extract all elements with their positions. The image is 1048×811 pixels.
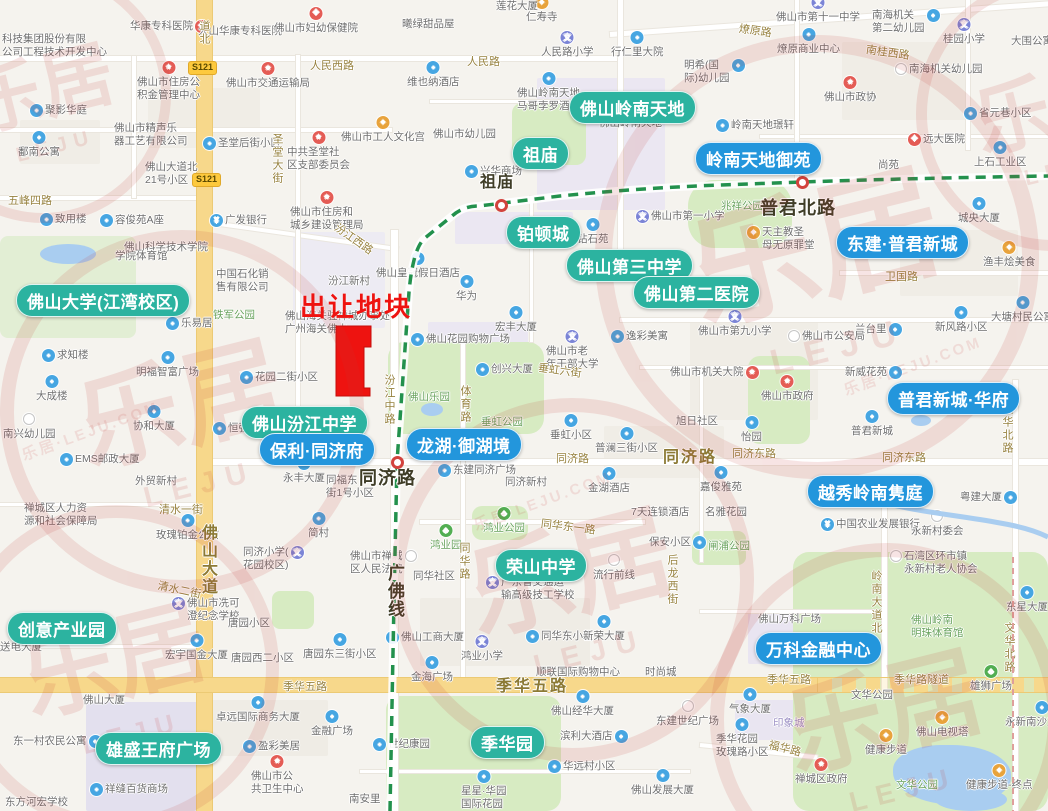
map-badge-project[interactable]: 越秀岭南隽庭 <box>807 475 934 508</box>
road <box>840 271 1048 275</box>
poi-label-text: 佛山市公共卫生中心 <box>251 770 304 795</box>
map-badge-project[interactable]: 东建·普君新城 <box>836 226 969 259</box>
building-icon: ▪ <box>438 464 451 477</box>
poi-label-text: 华康专科医院 <box>130 20 193 33</box>
road-label: 同华路 <box>456 542 472 581</box>
building-icon: ▪ <box>526 630 539 643</box>
poi-label: 同济新村 <box>505 476 547 489</box>
poi-label: ▪鄱南公寓 <box>18 146 60 159</box>
poi-label-text: 名雅花园 <box>705 506 747 519</box>
place-icon <box>682 700 694 712</box>
poi-label-text: 唐园东三街小区 <box>303 648 377 661</box>
map-badge-project[interactable]: 保利·同济府 <box>259 433 375 466</box>
poi-label: 佛山大道北21号小区 <box>145 161 198 186</box>
poi-label: 佛山市精声乐器工艺有限公司 <box>114 122 188 147</box>
poi-label-text: 容俊苑A座 <box>115 214 164 227</box>
poi-label: 唐园小区 <box>228 617 270 630</box>
building-icon: ▪ <box>148 405 161 418</box>
poi-label: 佛山岭南明珠体育馆 <box>911 614 964 639</box>
bank-icon: ¥ <box>821 518 834 531</box>
poi-label-text: 雄狮广场 <box>970 680 1012 693</box>
government-icon: ★ <box>320 191 333 204</box>
attraction-icon: ✦ <box>936 711 949 724</box>
poi-label: ▪星星·华园国际花园 <box>461 785 507 810</box>
poi-label-text: 健康步道 <box>865 744 907 757</box>
poi-label-text: 粤建大厦 <box>960 491 1002 504</box>
poi-label-text: 佛山市幼儿园 <box>433 128 496 141</box>
poi-label-text: 季华花园玫瑰路小区 <box>716 733 769 758</box>
building-icon: ▪ <box>693 536 706 549</box>
map-badge-project[interactable]: 岭南天地御苑 <box>695 142 822 175</box>
poi-label: 佛山万科广场 <box>758 613 821 626</box>
government-icon: ★ <box>262 62 275 75</box>
poi-label: ¥中国农业发展银行 <box>821 518 920 531</box>
road-label: 文华北路 <box>1001 622 1017 674</box>
poi-label: ▪金融广场 <box>311 725 353 738</box>
map-badge-project[interactable]: 万科金融中心 <box>755 632 882 665</box>
bank-icon: ¥ <box>210 214 223 227</box>
poi-label-text: 东方河宏学校 <box>5 796 68 809</box>
poi-label: 东一村农民公寓▪ <box>13 735 102 748</box>
poi-label: ▪盈彩美居 <box>243 740 300 753</box>
road-label: 五峰四路 <box>8 192 52 208</box>
building-icon: ▪ <box>45 375 58 388</box>
building-icon: ▪ <box>736 718 749 731</box>
poi-label: ★佛山市政协 <box>824 91 877 104</box>
attraction-icon: ✦ <box>747 226 760 239</box>
poi-label-text: 佛山大厦 <box>83 694 125 707</box>
attraction-icon: ✦ <box>377 116 390 129</box>
poi-label-text: 新风路小区 <box>935 321 988 334</box>
poi-label-text: 佛山市第一小学 <box>651 210 725 223</box>
poi-label: ▪城央大厦 <box>958 212 1000 225</box>
map-badge-landmark[interactable]: 季华园 <box>470 726 545 759</box>
water-area <box>911 415 931 426</box>
poi-label: 禅城区人力资源和社会保障局 <box>24 502 98 527</box>
road <box>296 55 300 461</box>
poi-label: 闸浦公园 <box>708 540 750 553</box>
poi-label-text: 省元巷小区 <box>979 107 1032 120</box>
school-icon: 文 <box>812 0 825 9</box>
poi-label-text: 佛山市政协 <box>824 91 877 104</box>
poi-label: 粤建大厦▪ <box>960 491 1017 504</box>
poi-label: ✦天主教圣母无原罪堂 <box>747 226 815 251</box>
poi-label: 永新村委会 <box>911 525 964 538</box>
poi-label-text: 佛山万科广场 <box>758 613 821 626</box>
poi-label: ▪气象大厦 <box>729 703 771 716</box>
poi-label: 南海机关第二幼儿园▪ <box>872 9 940 34</box>
poi-label: ▪佛山工商大厦 <box>386 631 464 644</box>
building-icon: ▪ <box>964 107 977 120</box>
building-icon: ▪ <box>542 72 555 85</box>
poi-label: ▪省元巷小区 <box>964 107 1032 120</box>
poi-label: +远大医院 <box>908 133 965 146</box>
poi-label: 中国石化销售有限公司 <box>216 268 269 293</box>
metro-station-label: 祖庙 <box>480 168 514 192</box>
poi-label-text: 汾江新村 <box>328 275 370 288</box>
poi-label-text: 嘉俊雅苑 <box>700 481 742 494</box>
poi-label-text: 钻石苑 <box>577 233 609 246</box>
poi-label: 7天连锁酒店 <box>631 506 689 519</box>
government-icon: ★ <box>162 61 175 74</box>
poi-label: ▪创兴大厦 <box>476 363 533 376</box>
poi-label: 莲花大厦 <box>496 0 538 13</box>
road-label: 圣堂大街 <box>269 133 285 185</box>
poi-label-text: 佛山市妇幼保健院 <box>274 22 358 35</box>
map-badge-project[interactable]: 龙湖·御湖境 <box>406 428 522 461</box>
poi-label-text: 垂虹小区 <box>550 429 592 442</box>
poi-label-text: 金湖酒店 <box>588 482 630 495</box>
poi-label-text: 佛山市第九小学 <box>698 325 772 338</box>
poi-label-text: 南海机关幼儿园 <box>909 63 983 76</box>
map-badge-landmark[interactable]: 雄盛王府广场 <box>95 732 222 765</box>
poi-label-text: 创兴大厦 <box>491 363 533 376</box>
poi-label-text: 健康步道-终点 <box>966 779 1033 792</box>
poi-label-text: 怡园 <box>741 431 762 444</box>
poi-label-text: 7天连锁酒店 <box>631 506 689 519</box>
poi-label-text: 人民路小学 <box>541 46 594 59</box>
building-icon: ▪ <box>615 730 628 743</box>
building-icon: ▪ <box>460 275 473 288</box>
metro-station-label: 普君北路 <box>760 194 836 220</box>
poi-label: ▪逸彩美寓 <box>611 330 668 343</box>
poi-label: ▪致用楼 <box>40 213 87 226</box>
poi-label: 同济小学(花园校区)文 <box>243 546 304 571</box>
poi-label: ▪聚影华庭 <box>30 104 87 117</box>
watermark-text: 乐居 <box>961 28 1048 174</box>
poi-label: 南兴幼儿园 <box>3 428 56 441</box>
poi-label-text: 佛山市机关大院 <box>670 366 744 379</box>
poi-label: 时尚城 <box>645 666 677 679</box>
poi-label: 尚苑 <box>878 159 899 172</box>
poi-label: ★佛山市公共卫生中心 <box>251 770 304 795</box>
poi-label-text: 佛山市精声乐器工艺有限公司 <box>114 122 188 147</box>
poi-label-text: 宏丰大厦 <box>495 321 537 334</box>
poi-label: 唐园西二小区 <box>231 652 294 665</box>
road-label: 同济东路 <box>882 449 926 465</box>
poi-label-text: 佛山岭南明珠体育馆 <box>911 614 964 639</box>
building-icon: ▪ <box>373 738 386 751</box>
poi-label: ▪金湖酒店 <box>588 482 630 495</box>
attraction-icon: ✦ <box>1003 241 1016 254</box>
map-badge-landmark[interactable]: 荣山中学 <box>495 549 587 582</box>
road-label: 同济路 <box>556 450 589 466</box>
poi-label: ★佛山市政府 <box>761 390 814 403</box>
poi-label-text: 中国石化销售有限公司 <box>216 268 269 293</box>
poi-label: ✦佛山市工人文化宫 <box>341 131 425 144</box>
poi-label: ✦健康步道 <box>865 744 907 757</box>
government-icon: ★ <box>844 76 857 89</box>
poi-label: ▪求知楼 <box>42 349 89 362</box>
poi-label: ▪钻石苑 <box>577 233 609 246</box>
road-label: 后龙西街 <box>664 554 680 606</box>
poi-label-text: 上石工业区 <box>974 156 1027 169</box>
poi-label: ▪宏丰大厦 <box>495 321 537 334</box>
poi-label: ▪世纪康园 <box>373 738 430 751</box>
poi-label: ★中共圣堂社区支部委员会 <box>287 146 350 171</box>
water-area <box>421 403 443 416</box>
building-icon: ▪ <box>1004 491 1017 504</box>
road-label: 同济东路 <box>732 445 776 461</box>
road-label: 道北 <box>196 20 212 46</box>
building-icon: ▪ <box>889 366 902 379</box>
poi-label: ▪季华花园玫瑰路小区 <box>716 733 769 758</box>
building-icon: ▪ <box>631 31 644 44</box>
government-icon: ★ <box>271 755 284 768</box>
poi-label-text: 大塘村民公寓 <box>991 311 1048 324</box>
school-icon: 文 <box>561 31 574 44</box>
map-badge-landmark[interactable]: 祖庙 <box>512 137 569 170</box>
building-icon: ▪ <box>386 631 399 644</box>
poi-label-text: 曦绿甜品屋 <box>402 18 455 31</box>
poi-label: ▪垂虹小区 <box>550 429 592 442</box>
place-icon <box>788 330 800 342</box>
building-icon: ▪ <box>656 769 669 782</box>
poi-label-text: 佛山市政府 <box>761 390 814 403</box>
poi-label: ▪佛山花园购物广场 <box>411 333 510 346</box>
poi-label-text: 维也纳酒店 <box>407 76 460 89</box>
place-icon <box>931 510 943 522</box>
map-badge-landmark[interactable]: 创意产业园 <box>7 612 117 645</box>
poi-label: 南安里 <box>349 793 381 806</box>
poi-label-text: 学院体育馆 <box>115 250 168 263</box>
poi-label-text: 东建世纪广场 <box>656 715 719 728</box>
poi-label: 佛山大厦 <box>83 694 125 707</box>
poi-label-text: 花园二街小区 <box>255 371 318 384</box>
government-icon: ★ <box>781 375 794 388</box>
building-icon: ▪ <box>326 710 339 723</box>
building-icon: ▪ <box>100 214 113 227</box>
poi-label: ▪燎原商业中心 <box>777 43 840 56</box>
hospital-icon: + <box>310 7 323 20</box>
building-icon: ▪ <box>476 363 489 376</box>
poi-label-text: 中国农业发展银行 <box>836 518 920 531</box>
poi-label: ★佛山市交通运输局 <box>226 77 310 90</box>
poi-label-text: 佛山经华大厦 <box>551 705 614 718</box>
poi-label: ♣鸿业公园 <box>483 522 525 535</box>
building-icon: ▪ <box>889 323 902 336</box>
poi-label-text: 致用楼 <box>55 213 87 226</box>
building-icon: ▪ <box>40 213 53 226</box>
poi-label: 曦绿甜品屋 <box>402 18 455 31</box>
place-icon <box>405 550 417 562</box>
map-badge-landmark[interactable]: 佛山第二医院 <box>633 276 760 309</box>
poi-label-text: 佛山工商大厦 <box>401 631 464 644</box>
poi-label: +佛山市妇幼保健院 <box>274 22 358 35</box>
building-icon: ▪ <box>190 634 203 647</box>
poi-label-text: 佛山发展大厦 <box>631 784 694 797</box>
poi-label: ▪上石工业区 <box>974 156 1027 169</box>
poi-label: ▪行仁里大院 <box>611 46 664 59</box>
road-label: 同济路 <box>663 443 717 467</box>
school-icon: 文 <box>728 310 741 323</box>
map-badge-landmark[interactable]: 佛山大学(江湾校区) <box>16 284 190 317</box>
road-label: 季华五路 <box>496 672 568 696</box>
road-label: 同华东一路 <box>540 515 597 538</box>
poi-label-text: 垂虹公园 <box>481 416 523 429</box>
building-icon: ▪ <box>598 615 611 628</box>
poi-label-text: 唐园小区 <box>228 617 270 630</box>
poi-label: 兆祥公园 <box>721 200 763 213</box>
poi-label: ▪卓远国际商务大厦 <box>216 711 300 724</box>
poi-label: 石湾区环市镇永新村老人协会 <box>890 550 978 575</box>
poi-label-text: 同济新村 <box>505 476 547 489</box>
poi-label: 文人民路小学 <box>541 46 594 59</box>
poi-label-text: 中共圣堂社区支部委员会 <box>287 146 350 171</box>
building-icon: ▪ <box>213 422 226 435</box>
poi-label-text: 永新村委会 <box>911 525 964 538</box>
poi-label: ▪佛山发展大厦 <box>631 784 694 797</box>
poi-label: 保安小区▪ <box>649 536 706 549</box>
poi-label-text: 佛山花园购物广场 <box>426 333 510 346</box>
poi-label-text: 同济小学(花园校区) <box>243 546 289 571</box>
poi-label-text: 铁军公园 <box>213 309 255 322</box>
poi-label: 文佛山市第一小学 <box>636 210 725 223</box>
building-icon: ▪ <box>426 656 439 669</box>
metro-station-icon <box>796 176 809 189</box>
building-icon: ▪ <box>994 141 1007 154</box>
poi-label-text: 明希(国际)幼儿园 <box>684 59 730 84</box>
government-icon: ★ <box>815 758 828 771</box>
poi-label: 汾江新村 <box>328 275 370 288</box>
poi-label-text: 乐易居 <box>181 317 213 330</box>
poi-label: ▪明福智富广场 <box>136 366 199 379</box>
poi-label-text: 求知楼 <box>57 349 89 362</box>
map-badge-landmark[interactable]: 佛山岭南天地 <box>569 91 696 124</box>
poi-label-text: 星星·华园国际花园 <box>461 785 507 810</box>
building-icon: ▪ <box>955 306 968 319</box>
road-label: 季华五路 <box>767 671 811 687</box>
school-icon: 文 <box>172 597 185 610</box>
poi-label-text: 莲花大厦 <box>496 0 538 13</box>
school-icon: 文 <box>566 330 579 343</box>
poi-label-text: 岭南天地璟轩 <box>731 119 794 132</box>
poi-label: ▪新荣大厦 <box>583 630 625 643</box>
map-badge-landmark[interactable]: 铂顿城 <box>506 216 581 249</box>
poi-label-text: 渔丰烩美食 <box>983 256 1036 269</box>
poi-label: ▪永丰大厦 <box>283 472 325 485</box>
road-label: 清水一街 <box>159 501 203 517</box>
building-icon: ▪ <box>510 306 523 319</box>
government-icon: ★ <box>746 366 759 379</box>
poi-label: ★禅城区政府 <box>795 773 848 786</box>
road <box>760 135 1048 138</box>
road-label: 人民西路 <box>310 57 354 73</box>
poi-label-text: 外贸新村 <box>135 475 177 488</box>
poi-label: ▪怡园 <box>741 431 762 444</box>
poi-label: ▪金海广场 <box>411 671 453 684</box>
poi-label-text: 金海广场 <box>411 671 453 684</box>
main-road <box>0 678 818 692</box>
poi-label-text: 南兴幼儿园 <box>3 428 56 441</box>
park-icon: ♣ <box>439 524 452 537</box>
poi-label: ▪协和大厦 <box>133 420 175 433</box>
poi-label: ▪花园二街小区 <box>240 371 318 384</box>
poi-label: 文华公园 <box>851 689 893 702</box>
school-icon: 文 <box>486 576 499 589</box>
building-icon: ▪ <box>477 770 490 783</box>
map-canvas[interactable]: 出让地块 S121S121科技集团股份有限公司工程技术开发中心华康专科医院+大山… <box>0 0 1048 811</box>
poi-label: ¥广发银行 <box>210 214 267 227</box>
building-icon: ▪ <box>745 416 758 429</box>
poi-label: ▪唐园东三街小区 <box>303 648 377 661</box>
building-icon: ▪ <box>411 333 424 346</box>
poi-label-text: 同华社区 <box>413 570 455 583</box>
poi-label: ▪佛山皇冠假日酒店 <box>376 267 460 280</box>
land-parcel-label: 出让地块 <box>300 287 412 324</box>
school-icon: 文 <box>476 635 489 648</box>
road-label: 季华五路 <box>283 678 327 694</box>
poi-label-text: 佛山市工人文化宫 <box>341 131 425 144</box>
poi-label: ✦渔丰烩美食 <box>983 256 1036 269</box>
government-icon: ★ <box>312 131 325 144</box>
poi-label-text: 行仁里大院 <box>611 46 664 59</box>
building-icon: ▪ <box>603 467 616 480</box>
poi-label-text: 气象大厦 <box>729 703 771 716</box>
road-label: 季华路隧道 <box>894 671 949 687</box>
poi-label: ▪普澜三街小区 <box>595 442 658 455</box>
poi-label-text: 燎原商业中心 <box>777 43 840 56</box>
poi-label: ▪普君新城 <box>851 425 893 438</box>
building-icon: ▪ <box>240 371 253 384</box>
poi-label-text: 仁寿寺 <box>526 11 558 24</box>
poi-label-text: 禅城区人力资源和社会保障局 <box>24 502 98 527</box>
poi-label: ▪华为 <box>456 290 477 303</box>
road-label: 人民路 <box>467 53 500 69</box>
poi-label: ▪东星大厦 <box>1006 601 1048 614</box>
poi-label: ✦佛山电视塔 <box>916 726 969 739</box>
road-label: 汾江中路 <box>381 374 397 426</box>
building-icon: ▪ <box>973 197 986 210</box>
poi-label-text: 南海机关第二幼儿园 <box>872 9 925 34</box>
poi-label-text: 鄱南公寓 <box>18 146 60 159</box>
poi-label: 文佛山市第十一中学 <box>776 11 860 24</box>
poi-label-text: 广发银行 <box>225 214 267 227</box>
road <box>360 770 690 773</box>
poi-label-text: 金融广场 <box>311 725 353 738</box>
poi-label: 新威花苑▪ <box>845 366 902 379</box>
poi-label-text: 天主教圣母无原罪堂 <box>762 226 815 251</box>
place-icon <box>608 554 620 566</box>
poi-label: 流行前线 <box>593 569 635 582</box>
poi-label-text: 兆祥公园 <box>721 200 763 213</box>
building-icon: ▪ <box>427 61 440 74</box>
map-badge-project[interactable]: 普君新城·华府 <box>887 382 1020 415</box>
poi-label: 文华公园 <box>896 779 938 792</box>
building-icon: ▪ <box>333 633 346 646</box>
poi-label: 明希(国际)幼儿园▪ <box>684 59 745 84</box>
poi-label-text: 逸彩美寓 <box>626 330 668 343</box>
poi-label-text: 佛山乐园 <box>408 391 450 404</box>
poi-label: ▪永新南沙工业区 <box>1005 716 1048 729</box>
poi-label: 文佛山市第九小学 <box>698 325 772 338</box>
poi-label: ▪大成楼 <box>36 390 68 403</box>
poi-label: 文鸿业小学 <box>461 650 503 663</box>
road-shield-icon: S121 <box>188 61 217 75</box>
poi-label-text: 闸浦公园 <box>708 540 750 553</box>
building-icon: ▪ <box>60 453 73 466</box>
building-icon: ▪ <box>30 104 43 117</box>
poi-label: 旭日社区 <box>676 415 718 428</box>
poi-label: 佛山市机关大院★ <box>670 366 759 379</box>
poi-label-text: 卓远国际商务大厦 <box>216 711 300 724</box>
poi-label-text: 普君新城 <box>851 425 893 438</box>
poi-label-text: 宏宇国金大厦 <box>165 649 228 662</box>
building-icon: ▪ <box>312 512 325 525</box>
poi-label-text: 东建同济广场 <box>453 464 516 477</box>
metro-station-label: 广佛线 <box>382 564 407 618</box>
poi-label: 南海机关幼儿园 <box>895 63 983 76</box>
